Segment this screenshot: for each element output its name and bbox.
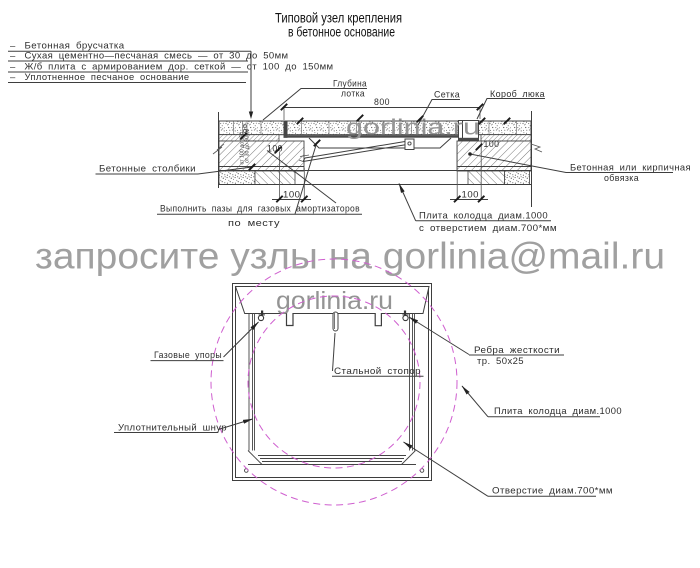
svg-text:Бетонная или кирпичная: Бетонная или кирпичная — [570, 163, 691, 174]
svg-text:Ребра жесткости: Ребра жесткости — [474, 345, 560, 356]
svg-text:обвязка: обвязка — [604, 173, 639, 184]
svg-text:тр. 50х25: тр. 50х25 — [477, 356, 524, 367]
svg-text:в бетонное основание: в бетонное основание — [288, 25, 395, 40]
svg-text:Сетка: Сетка — [434, 90, 460, 101]
svg-text:лотка: лотка — [341, 89, 365, 100]
svg-text:Стальной стопор: Стальной стопор — [334, 366, 421, 377]
svg-text:gorlinia.ru: gorlinia.ru — [276, 287, 393, 315]
svg-text:с отверстием диам.700*мм: с отверстием диам.700*мм — [419, 223, 557, 234]
svg-text:запросите узлы на gorlinia@mai: запросите узлы на gorlinia@mail.ru — [35, 236, 665, 277]
svg-text:Отверстие диам.700*мм: Отверстие диам.700*мм — [492, 485, 613, 496]
svg-text:–: – — [10, 50, 16, 61]
svg-text:100: 100 — [283, 189, 301, 200]
svg-text:Уплотненное песчаное основание: Уплотненное песчаное основание — [25, 72, 190, 83]
svg-text:Газовые упоры: Газовые упоры — [154, 350, 222, 361]
svg-text:Выполнить пазы для газовых амо: Выполнить пазы для газовых амортизаторов — [160, 204, 360, 215]
svg-text:800: 800 — [374, 97, 390, 108]
svg-text:–: – — [10, 72, 16, 83]
svg-text:Ж/б плита с армированием дор.: Ж/б плита с армированием дор. сеткой — о… — [25, 61, 334, 72]
svg-text:Плита колодца диам.1000: Плита колодца диам.1000 — [419, 210, 548, 221]
svg-text:100: 100 — [462, 189, 480, 200]
svg-text:Уплотнительный шнур: Уплотнительный шнур — [118, 423, 227, 434]
svg-text:Плита колодца диам.1000: Плита колодца диам.1000 — [494, 406, 622, 417]
svg-text:Бетонные столбики: Бетонные столбики — [99, 164, 196, 175]
svg-text:gorlinia.ru: gorlinia.ru — [346, 115, 480, 140]
svg-text:Типовой узел крепления: Типовой узел крепления — [275, 11, 402, 26]
svg-text:по месту: по месту — [228, 218, 280, 229]
svg-text:100: 100 — [484, 139, 500, 150]
svg-text:–: – — [10, 61, 16, 72]
svg-text:Сухая цементно—песчаная смесь: Сухая цементно—песчаная смесь — от 30 до… — [25, 50, 289, 61]
